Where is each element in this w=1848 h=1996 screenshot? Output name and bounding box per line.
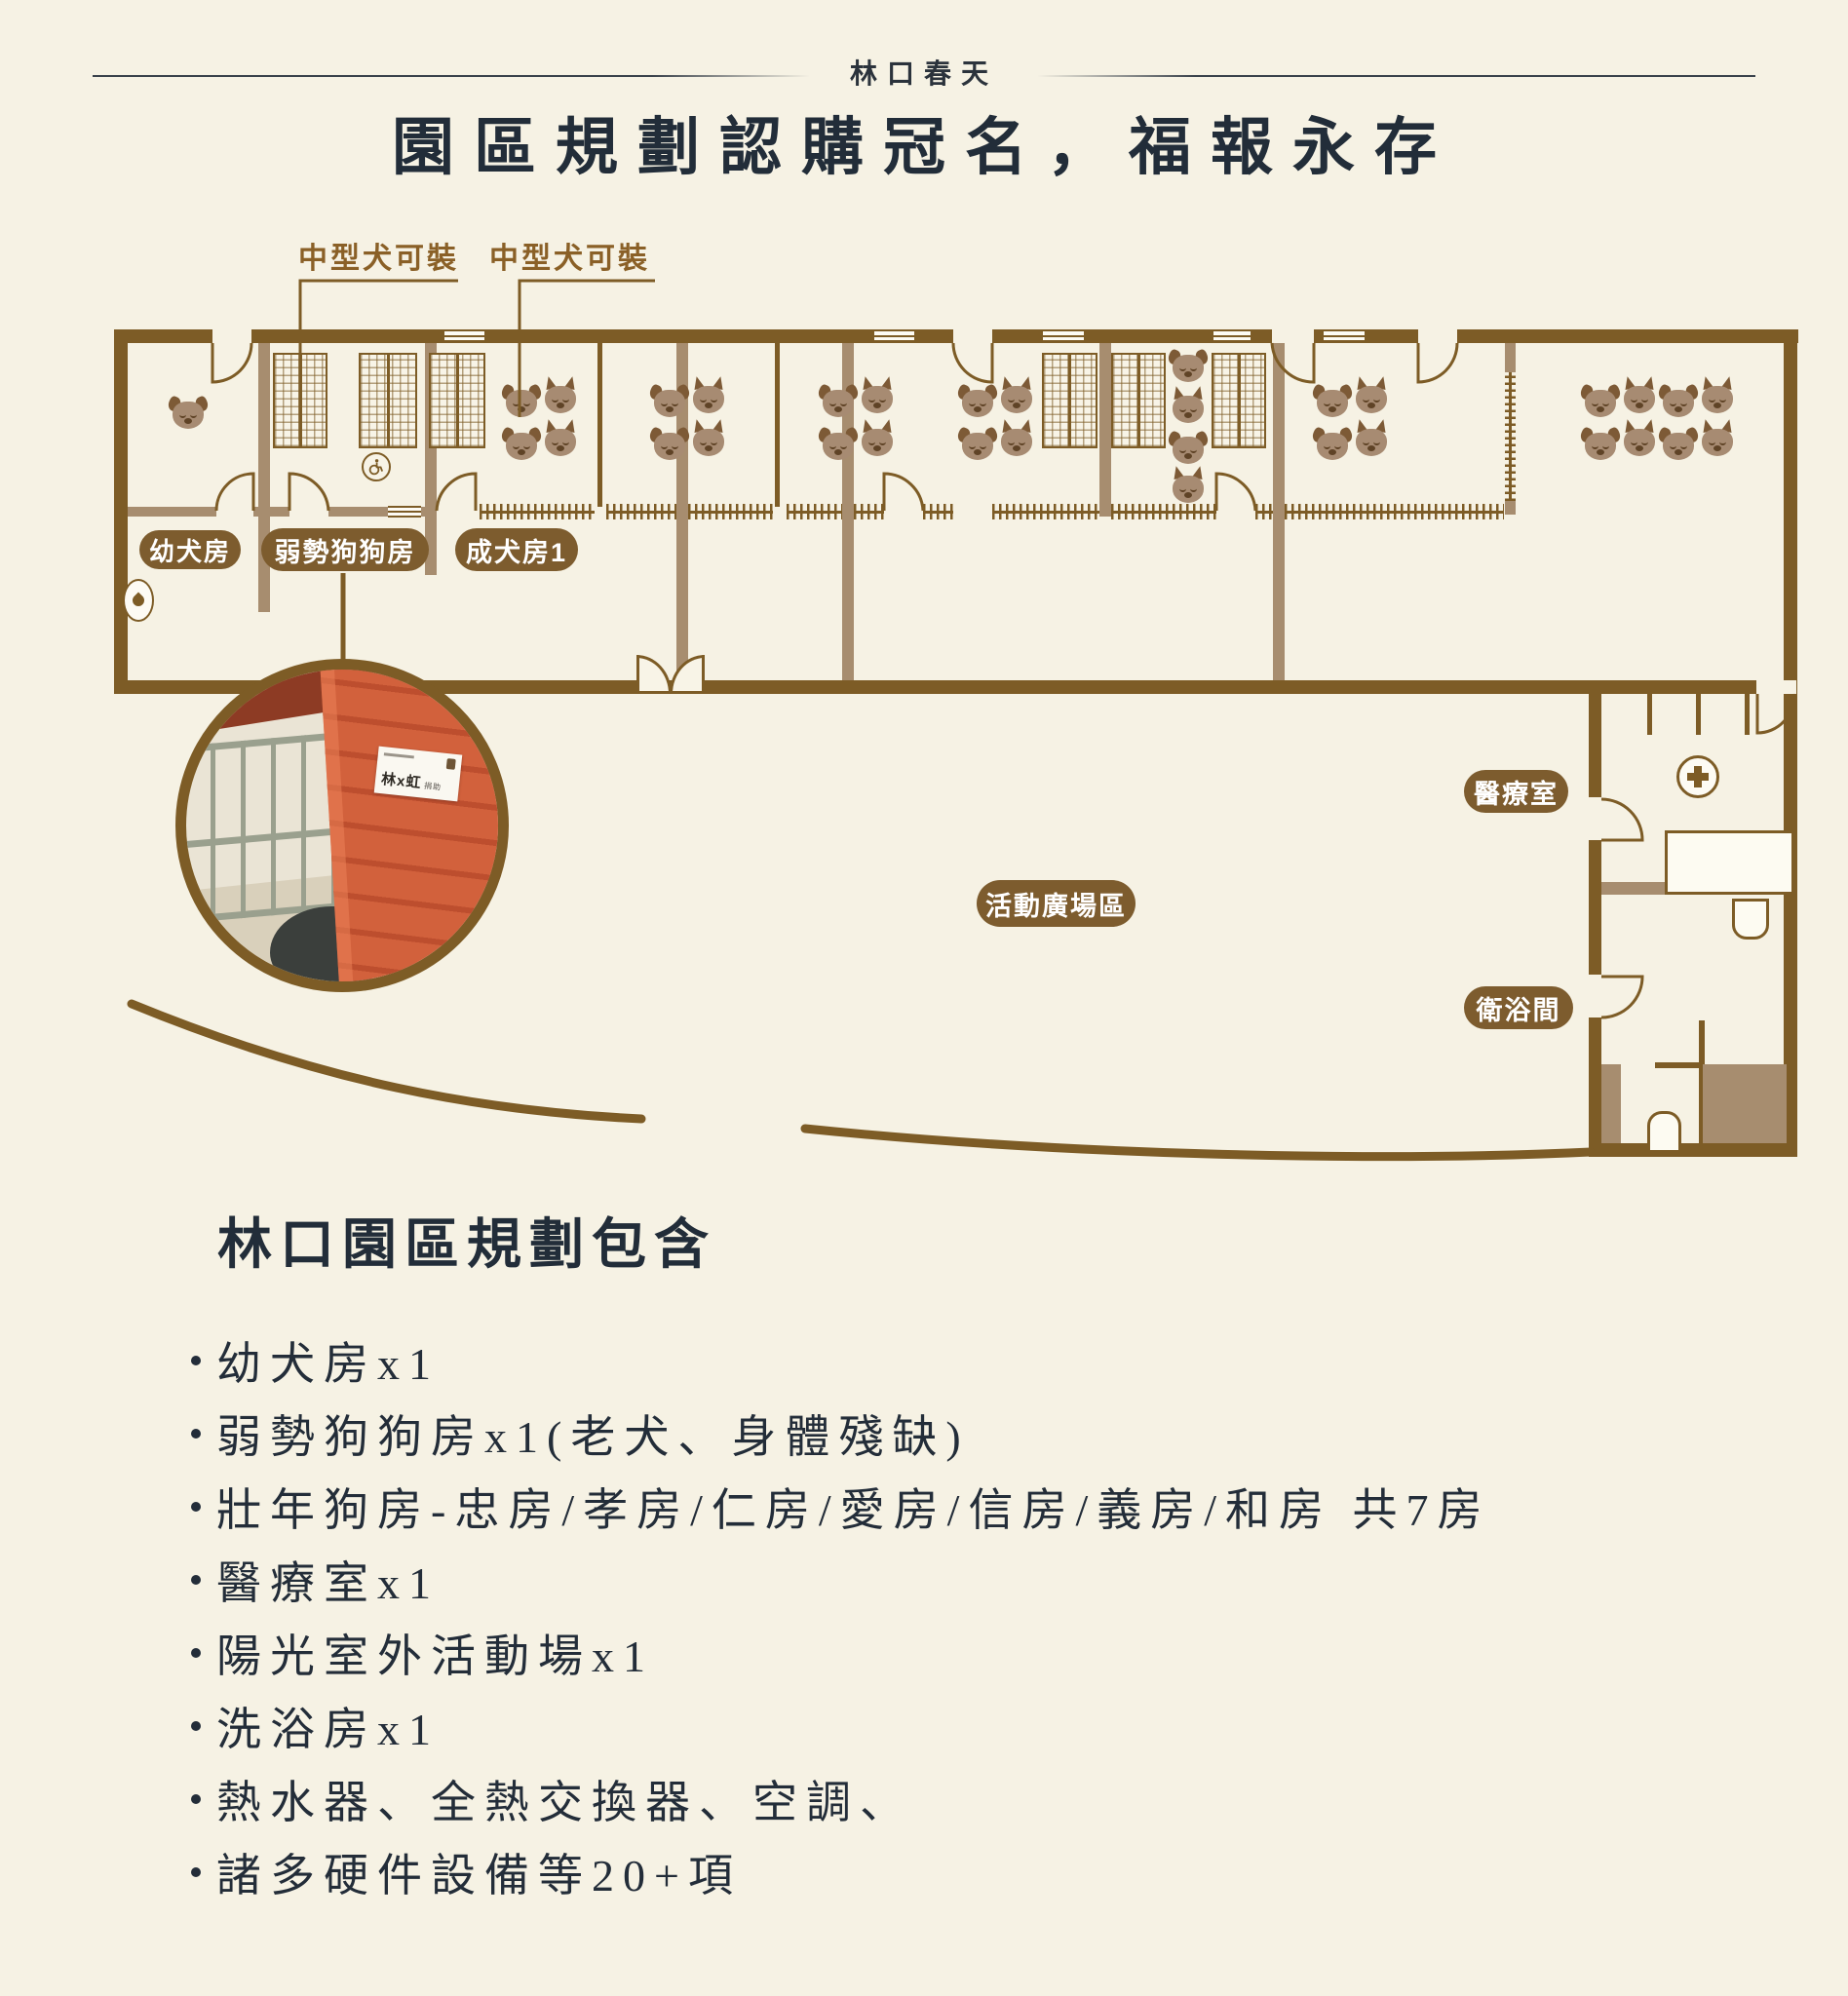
dog-cage bbox=[1111, 353, 1166, 448]
exam-table bbox=[1665, 830, 1794, 895]
fence-rail-vertical bbox=[1505, 372, 1516, 501]
dog-icon bbox=[172, 394, 205, 431]
badge-bathroom: 衛浴間 bbox=[1464, 986, 1573, 1029]
tan-wall bbox=[1273, 343, 1285, 680]
wall bbox=[1784, 329, 1797, 1157]
sink bbox=[1732, 899, 1769, 940]
dog-icon bbox=[1172, 468, 1205, 505]
floor-plan: 林x虹捐助 幼犬房弱勢狗狗房成犬房1活動廣場區醫療室衛浴間中型犬可裝中型犬可裝 bbox=[0, 0, 1848, 1228]
outdoor-boundary-curve-right bbox=[805, 1129, 1591, 1157]
dog-icon bbox=[1355, 421, 1388, 458]
dog-icon bbox=[505, 425, 538, 462]
feature-item: 幼犬房x1 bbox=[191, 1324, 1491, 1397]
tan-wall bbox=[1505, 501, 1516, 515]
wall bbox=[775, 343, 780, 507]
dog-icon bbox=[505, 382, 538, 419]
fence-rail bbox=[923, 504, 953, 519]
dog-icon bbox=[1316, 382, 1349, 419]
feature-item: 弱勢狗狗房x1(老犬、身體殘缺) bbox=[191, 1397, 1491, 1470]
dog-icon bbox=[861, 378, 894, 415]
badge-puppy-room: 幼犬房 bbox=[139, 530, 241, 569]
callout-medium-dog-2: 中型犬可裝 bbox=[489, 234, 650, 277]
window bbox=[1213, 329, 1251, 342]
kennel-photo: 林x虹捐助 bbox=[175, 659, 509, 992]
plan-lines-overlay bbox=[0, 0, 1848, 1228]
dog-icon bbox=[692, 378, 725, 415]
wall bbox=[1647, 694, 1652, 735]
wall-opening bbox=[1756, 680, 1796, 694]
wall-opening bbox=[953, 329, 992, 343]
section-heading: 林口園區規劃包含 bbox=[217, 1201, 716, 1280]
fence-rail bbox=[480, 504, 595, 519]
tan-wall bbox=[258, 343, 270, 612]
header-rule-right bbox=[1037, 75, 1755, 77]
wall-opening bbox=[1589, 975, 1601, 1017]
dog-icon bbox=[1623, 421, 1656, 458]
badge-activity-plaza: 活動廣場區 bbox=[977, 880, 1136, 927]
dog-icon bbox=[1584, 425, 1617, 462]
callout-medium-dog-1: 中型犬可裝 bbox=[298, 234, 459, 277]
fence-rail bbox=[787, 504, 842, 519]
badge-vulnerable-dog-room: 弱勢狗狗房 bbox=[261, 528, 429, 571]
dog-icon bbox=[1584, 382, 1617, 419]
fence-rail bbox=[606, 504, 676, 519]
feature-item: 壯年狗房-忠房/孝房/仁房/愛房/信房/義房/和房 共7房 bbox=[191, 1470, 1491, 1543]
wall bbox=[1589, 694, 1601, 1157]
wall bbox=[1655, 1062, 1703, 1068]
feature-item: 諸多硬件設備等20+項 bbox=[191, 1835, 1491, 1908]
dog-icon bbox=[1172, 347, 1205, 384]
window bbox=[1324, 329, 1365, 342]
door-arc bbox=[953, 343, 992, 382]
dog-cage bbox=[1042, 353, 1097, 448]
dog-icon bbox=[822, 382, 855, 419]
dog-icon bbox=[692, 421, 725, 458]
feature-item: 陽光室外活動場x1 bbox=[191, 1616, 1491, 1689]
toilet bbox=[1647, 1111, 1681, 1153]
wall bbox=[1589, 1143, 1797, 1157]
dog-cage bbox=[359, 353, 417, 448]
dog-icon bbox=[1662, 425, 1695, 462]
feature-item: 醫療室x1 bbox=[191, 1543, 1491, 1616]
dog-cage bbox=[1212, 353, 1266, 448]
water-drop-icon bbox=[123, 579, 154, 622]
dog-icon bbox=[1355, 378, 1388, 415]
wall bbox=[1745, 694, 1750, 735]
door-arc bbox=[216, 474, 253, 511]
feature-item: 洗浴房x1 bbox=[191, 1689, 1491, 1762]
dog-icon bbox=[1000, 421, 1033, 458]
window bbox=[1043, 329, 1084, 342]
wall bbox=[1696, 694, 1701, 735]
plate-donor-sub: 捐助 bbox=[424, 782, 443, 792]
wall-opening bbox=[1272, 329, 1314, 343]
features-list: 幼犬房x1弱勢狗狗房x1(老犬、身體殘缺)壯年狗房-忠房/孝房/仁房/愛房/信房… bbox=[191, 1324, 1491, 1908]
badge-adult-dog-room-1: 成犬房1 bbox=[455, 528, 578, 571]
window bbox=[388, 506, 421, 518]
donor-name-plate: 林x虹捐助 bbox=[374, 747, 463, 802]
dog-icon bbox=[1701, 421, 1734, 458]
wall bbox=[1703, 1064, 1787, 1143]
dog-icon bbox=[653, 382, 686, 419]
outdoor-boundary-curve-left bbox=[132, 1004, 641, 1119]
medical-cross-icon bbox=[1676, 755, 1719, 798]
dog-icon bbox=[1172, 388, 1205, 425]
dog-icon bbox=[1000, 378, 1033, 415]
tan-wall bbox=[128, 507, 216, 517]
dog-icon bbox=[961, 425, 994, 462]
tan-wall bbox=[1505, 343, 1516, 372]
entrance-door-left-leaf bbox=[636, 655, 672, 694]
dog-icon bbox=[861, 421, 894, 458]
fence-rail bbox=[688, 504, 773, 519]
wall bbox=[597, 343, 602, 507]
window bbox=[444, 329, 484, 342]
tan-wall bbox=[1099, 343, 1111, 517]
door-arc bbox=[212, 343, 251, 382]
dog-icon bbox=[822, 425, 855, 462]
door-arc bbox=[1601, 799, 1642, 840]
wheelchair-icon bbox=[362, 452, 391, 481]
fence-rail bbox=[1111, 504, 1216, 519]
dog-icon bbox=[544, 378, 577, 415]
fence-rail bbox=[1285, 504, 1504, 519]
entrance-door-right-leaf bbox=[670, 655, 705, 694]
wall bbox=[114, 329, 128, 694]
tan-wall bbox=[253, 507, 289, 517]
badge-medical-room: 醫療室 bbox=[1464, 770, 1568, 813]
door-arc bbox=[1418, 343, 1457, 382]
dog-cage bbox=[429, 353, 485, 448]
dog-icon bbox=[544, 421, 577, 458]
dog-icon bbox=[1316, 425, 1349, 462]
window bbox=[874, 329, 914, 342]
door-arc bbox=[1216, 474, 1255, 511]
dog-cage bbox=[273, 353, 327, 448]
page: 林口春天 園區規劃認購冠名，福報永存 bbox=[0, 0, 1848, 1996]
dog-icon bbox=[1701, 378, 1734, 415]
wall bbox=[1601, 1064, 1621, 1143]
wall-opening bbox=[1418, 329, 1457, 343]
wall-opening bbox=[212, 329, 251, 343]
door-arc bbox=[884, 474, 923, 511]
fence-rail bbox=[992, 504, 1099, 519]
plate-small-text bbox=[384, 752, 414, 758]
door-arc bbox=[437, 474, 476, 511]
fence-rail bbox=[854, 504, 884, 519]
dog-icon bbox=[1172, 429, 1205, 466]
dog-icon bbox=[653, 425, 686, 462]
door-arc bbox=[1601, 977, 1642, 1017]
dog-icon bbox=[961, 382, 994, 419]
plate-stamp-icon bbox=[446, 758, 456, 770]
plate-donor-name: 林x虹捐助 bbox=[380, 768, 443, 794]
wall-opening bbox=[1589, 797, 1601, 840]
dog-icon bbox=[1662, 382, 1695, 419]
fence-rail bbox=[1255, 504, 1273, 519]
door-arc bbox=[289, 474, 328, 511]
dog-icon bbox=[1623, 378, 1656, 415]
feature-item: 熱水器、全熱交換器、空調、 bbox=[191, 1762, 1491, 1835]
header-rule-left bbox=[93, 75, 810, 77]
